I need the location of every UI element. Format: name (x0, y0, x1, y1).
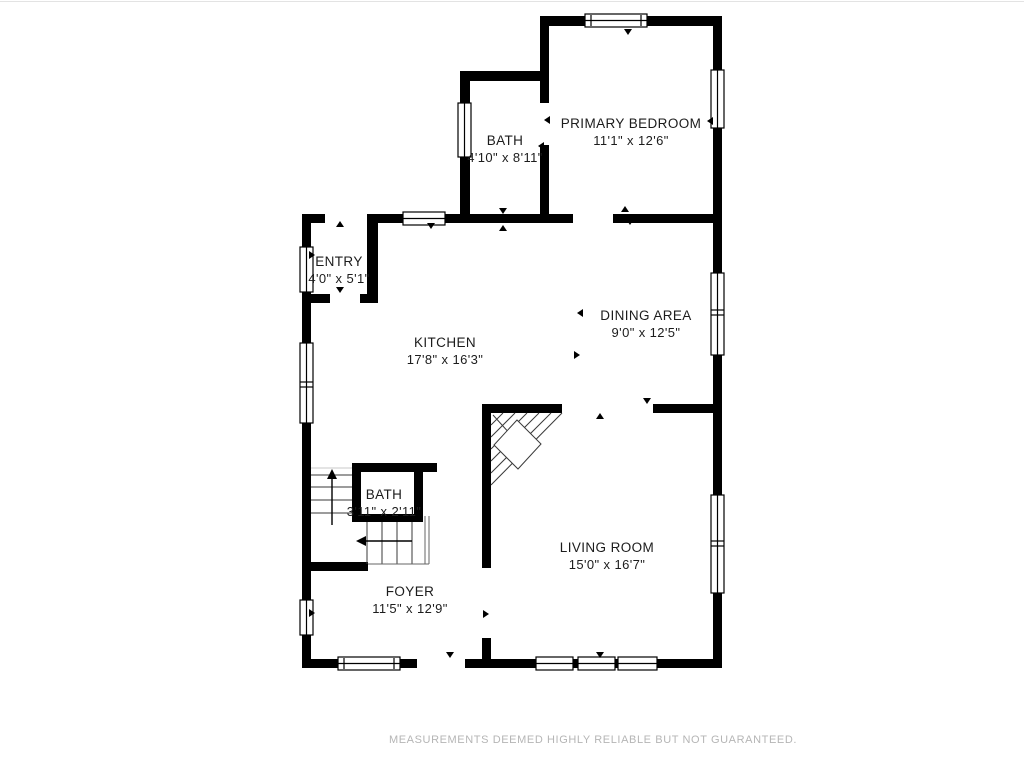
room-dimensions: 9'0" x 12'5" (600, 324, 691, 341)
walls (302, 16, 722, 668)
door-marker-up-icon (499, 225, 507, 231)
wall (302, 292, 311, 343)
wall (302, 214, 311, 247)
room-name: DINING AREA (600, 307, 691, 324)
wall (647, 16, 722, 26)
floorplan-page: PRIMARY BEDROOM 11'1" x 12'6" BATH 4'10"… (0, 0, 1024, 768)
door-marker-left-icon (577, 309, 583, 317)
room-label-dining-area: DINING AREA 9'0" x 12'5" (600, 307, 691, 341)
wall (713, 16, 722, 70)
wall (302, 423, 311, 600)
door-marker-up-icon (621, 206, 629, 212)
door-marker-down-icon (643, 398, 651, 404)
measurements-disclaimer: MEASUREMENTS DEEMED HIGHLY RELIABLE BUT … (389, 734, 797, 746)
door-marker-down-icon (624, 29, 632, 35)
wall (540, 16, 549, 103)
wall (713, 128, 722, 273)
room-name: BATH (467, 132, 543, 149)
wall (360, 294, 378, 303)
room-label-living-room: LIVING ROOM 15'0" x 16'7" (560, 539, 654, 573)
wall (445, 214, 573, 223)
room-dimensions: 11'5" x 12'9" (372, 600, 448, 617)
stair-arrow-up-icon (327, 469, 337, 479)
room-dimensions: 11'1" x 12'6" (561, 132, 702, 149)
door-marker-down-icon (499, 208, 507, 214)
door-marker-down-icon (446, 652, 454, 658)
room-name: LIVING ROOM (560, 539, 654, 556)
door-marker-up-icon (596, 413, 604, 419)
door-marker-down-icon (336, 287, 344, 293)
room-label-kitchen: KITCHEN 17'8" x 16'3" (407, 334, 484, 368)
room-dimensions: 17'8" x 16'3" (407, 351, 484, 368)
wall (653, 404, 722, 413)
door-marker-right-icon (483, 610, 489, 618)
stair-arrow-left-icon (356, 536, 366, 546)
room-dimensions: 4'0" x 5'1" (308, 270, 369, 287)
wall (302, 562, 368, 571)
room-dimensions: 15'0" x 16'7" (560, 556, 654, 573)
wall (352, 463, 437, 472)
door-marker-down-icon (427, 223, 435, 229)
room-dimensions: 4'10" x 8'11" (467, 149, 543, 166)
wall (460, 71, 549, 81)
door-marker-up-icon (336, 221, 344, 227)
wall (713, 355, 722, 495)
room-name: BATH (347, 486, 422, 503)
room-name: KITCHEN (407, 334, 484, 351)
wall (482, 404, 491, 568)
room-name: ENTRY (308, 253, 369, 270)
room-name: PRIMARY BEDROOM (561, 115, 702, 132)
wall (482, 404, 562, 413)
wall (713, 593, 722, 668)
room-label-bath-lower: BATH 3'11" x 2'11" (347, 486, 422, 520)
door-marker-left-icon (707, 117, 713, 125)
room-dimensions: 3'11" x 2'11" (347, 503, 422, 520)
room-label-foyer: FOYER 11'5" x 12'9" (372, 583, 448, 617)
room-label-entry: ENTRY 4'0" x 5'1" (308, 253, 369, 287)
room-label-bath-upper: BATH 4'10" x 8'11" (467, 132, 543, 166)
floorplan-drawing (0, 0, 1024, 768)
room-label-primary-bedroom: PRIMARY BEDROOM 11'1" x 12'6" (561, 115, 702, 149)
room-name: FOYER (372, 583, 448, 600)
door-marker-right-icon (574, 351, 580, 359)
door-marker-left-icon (544, 116, 550, 124)
windows (300, 14, 724, 670)
